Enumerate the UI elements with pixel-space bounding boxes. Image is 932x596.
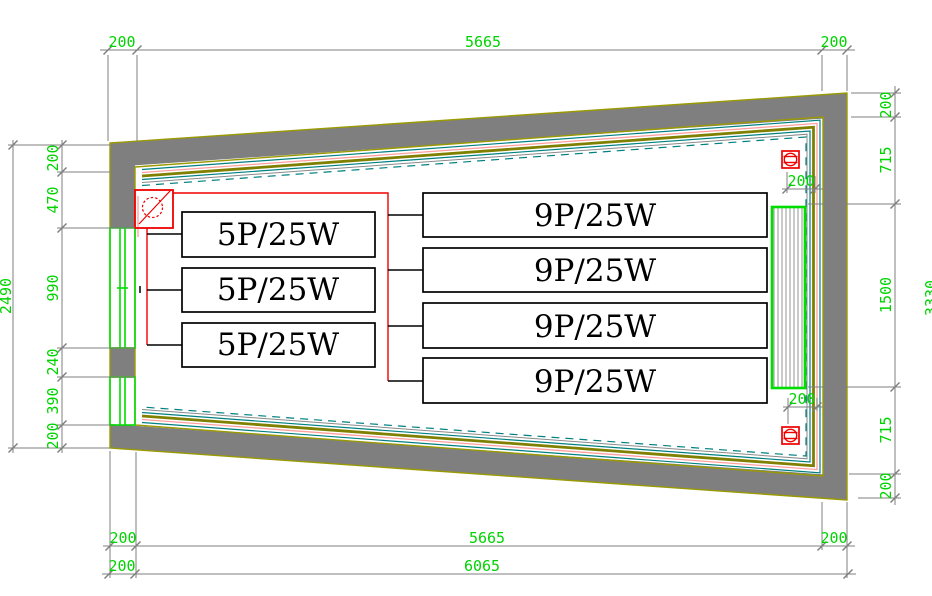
wall-left-upper [110, 150, 135, 228]
dim-label: 200 [877, 472, 895, 499]
floor-plan-canvas: 5P/25W 5P/25W 5P/25W 9P/25W 9P/25W 9P/25… [0, 0, 932, 596]
socket-symbol-top [782, 151, 799, 168]
dim-label: 200 [788, 390, 815, 408]
dim-label: 470 [44, 186, 62, 213]
dim-label: 3330 [922, 280, 932, 316]
dim-label: 200 [108, 557, 135, 575]
fixture-9p-label: 9P/25W [534, 253, 656, 289]
lamp-symbol [135, 190, 173, 228]
dim-label: 5665 [465, 33, 501, 51]
dim-label: 200 [877, 91, 895, 118]
window-left-upper [110, 228, 135, 348]
fixture-5p-label: 5P/25W [217, 217, 339, 253]
dim-label: 240 [44, 348, 62, 375]
dim-label: 1500 [877, 277, 895, 313]
dim-label: 390 [44, 387, 62, 414]
fixture-5p-label: 5P/25W [217, 327, 339, 363]
dim-label: 200 [44, 144, 62, 171]
dim-label: 715 [877, 146, 895, 173]
dim-label: 715 [877, 416, 895, 443]
fixtures-9p: 9P/25W 9P/25W 9P/25W 9P/25W [423, 193, 767, 403]
vent-strip [772, 207, 805, 388]
dim-label: 200 [108, 33, 135, 51]
cad-floor-plan: 5P/25W 5P/25W 5P/25W 9P/25W 9P/25W 9P/25… [0, 0, 932, 596]
dim-label: 6065 [464, 557, 500, 575]
wall-right [823, 100, 847, 495]
dim-label: 200 [44, 422, 62, 449]
dim-label: 200 [820, 33, 847, 51]
fixture-9p-label: 9P/25W [534, 198, 656, 234]
wall-top [110, 93, 847, 167]
fixture-9p-label: 9P/25W [534, 364, 656, 400]
dim-label: 5665 [469, 529, 505, 547]
wall-left-pier [110, 348, 135, 377]
dim-label: 200 [787, 172, 814, 190]
fixture-5p-label: 5P/25W [217, 272, 339, 308]
dim-label: 200 [109, 529, 136, 547]
wall-bottom [110, 424, 847, 500]
fixtures-5p: 5P/25W 5P/25W 5P/25W [182, 212, 375, 367]
dim-label: 990 [44, 274, 62, 301]
dim-label: 200 [820, 529, 847, 547]
dim-label: 2490 [0, 278, 15, 314]
window-left-lower [110, 377, 135, 425]
socket-symbol-bottom [782, 427, 799, 444]
fixture-9p-label: 9P/25W [534, 309, 656, 345]
